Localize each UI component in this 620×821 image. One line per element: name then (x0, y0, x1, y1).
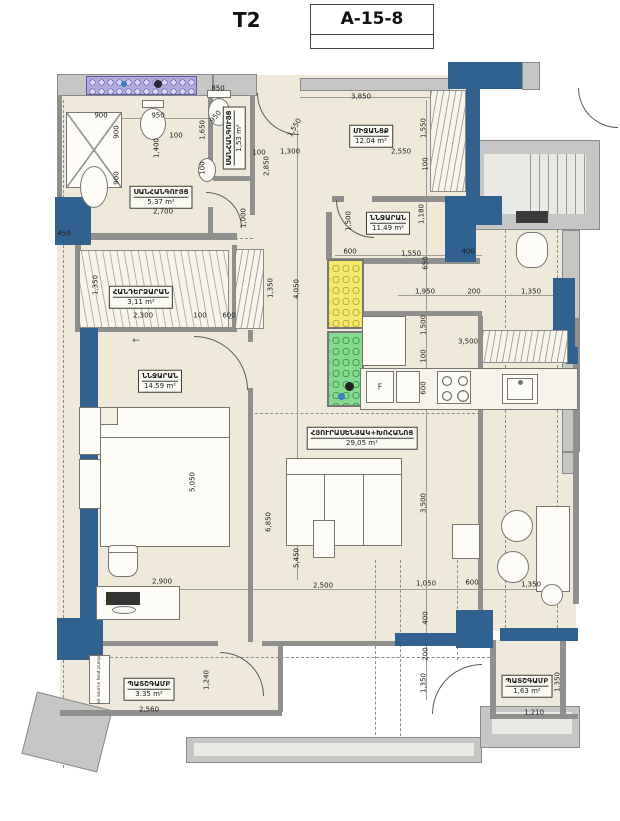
wall (490, 714, 578, 719)
kitchen-cabinet-hatched (482, 330, 568, 363)
radiator (86, 76, 197, 95)
room-label-wc: ՍԱՆՀԱՆԳՈՒՅՑ 1,53 m² (223, 106, 246, 169)
bearing-wall-bottom (395, 633, 463, 646)
kitchen-cabinet (396, 371, 420, 403)
room-label-dressing: ՀԱՆԴԵՐՁԱՐԱՆ 3,11 m² (109, 286, 173, 309)
wall (278, 645, 283, 712)
wall (248, 330, 253, 342)
fridge: F (366, 371, 394, 403)
bearing-wall-top (448, 62, 522, 89)
dimension-line (140, 589, 560, 590)
walkway-inner (194, 743, 474, 756)
water-heater (516, 232, 548, 268)
toilet-tank (207, 90, 231, 98)
bed-blanket-line (100, 437, 230, 438)
room-label-living-kitchen: ՀՅՈՒՐԱՍԵՆՅԱԿ+ԽՈՀԱՆՈՑ 29,05 m² (307, 427, 418, 450)
ventilation-shaft-green (327, 331, 364, 407)
wall (490, 640, 496, 716)
sofa (286, 458, 402, 546)
dimension-line (398, 295, 558, 296)
fridge-label: F (378, 383, 383, 392)
exterior-structure (522, 62, 540, 90)
ventilation-shaft-yellow (327, 259, 364, 329)
door-arc-balcony-right (432, 664, 482, 714)
nightstand (79, 459, 101, 509)
axis-line (250, 413, 480, 414)
coffee-table (313, 520, 335, 558)
ac-unit (516, 211, 548, 223)
kitchen-tall-cabinet (362, 316, 406, 366)
dining-chair (497, 551, 529, 583)
wardrobe (235, 249, 264, 329)
room-label-bedroom1: ՆՆՋԱՐԱՆ 14.59 m² (138, 370, 182, 393)
wall (250, 95, 255, 215)
wardrobe (430, 90, 466, 192)
dining-chair (541, 584, 563, 606)
plan-type-title: T2 (233, 8, 261, 32)
shaft-riser-dot (338, 393, 345, 400)
dresser-tray (112, 606, 136, 614)
bearing-wall (466, 85, 480, 208)
bearing-wall-bottom (500, 628, 578, 641)
wall (248, 388, 253, 642)
toilet-tank (142, 100, 164, 108)
sofa-cushion-line (363, 474, 364, 546)
room-label-bathroom: ՍԱՆՀԱՆԳՈՒՅՑ 5.37 m² (129, 186, 192, 209)
bathtub-sink (80, 166, 108, 208)
tv-on-dresser (106, 592, 140, 605)
bed (100, 407, 230, 547)
wall (560, 640, 566, 716)
axis-line (100, 657, 490, 658)
bed-fold-corner (100, 407, 118, 425)
radiator-valve-dot (121, 81, 127, 87)
dining-table (536, 506, 570, 592)
dining-chair (501, 510, 533, 542)
wall (60, 710, 282, 716)
apartment-code: A-15-8 (311, 5, 433, 35)
room-label-corridor: ՄԻՋԱՆՑՔ 12.04 m² (349, 125, 393, 148)
axis-line (375, 560, 376, 740)
room-label-balcony-left: ՊԱՏՇԳԱՄԲ 3.35 m² (124, 678, 175, 701)
faucet-dot (518, 380, 523, 385)
dimension-line (300, 97, 432, 98)
shaft-riser-dot (345, 382, 354, 391)
plant-pot-rim (108, 552, 138, 553)
sink (198, 158, 216, 182)
door-arc-terrace (578, 88, 618, 128)
room-label-bedroom2: ՆՆՋԱՐԱՆ 11.49 m² (366, 212, 410, 235)
column (456, 610, 493, 648)
floor-plan-canvas: T2 A-15-8 (0, 0, 620, 821)
plant-pot (108, 545, 138, 577)
heat-pump-label: air source heat pump (97, 656, 103, 704)
door-direction-arrow: ← (132, 336, 140, 346)
apartment-code-box: A-15-8 (310, 4, 434, 49)
room-label-balcony-right: ՊԱՏՇԳԱՄԲ 1,63 m² (502, 675, 553, 698)
code-box-blank-row (311, 35, 433, 48)
exterior-wall-top (300, 78, 450, 91)
tv-cabinet (452, 524, 480, 559)
wall (213, 176, 255, 181)
nightstand (79, 407, 101, 455)
column (57, 618, 103, 660)
toilet (140, 108, 166, 140)
column (445, 225, 476, 262)
sofa-back-line (286, 474, 402, 475)
radiator-valve-dot (154, 80, 162, 88)
terrace-steps (530, 154, 586, 214)
column (445, 196, 502, 225)
wall (326, 212, 332, 260)
stove (437, 371, 471, 404)
